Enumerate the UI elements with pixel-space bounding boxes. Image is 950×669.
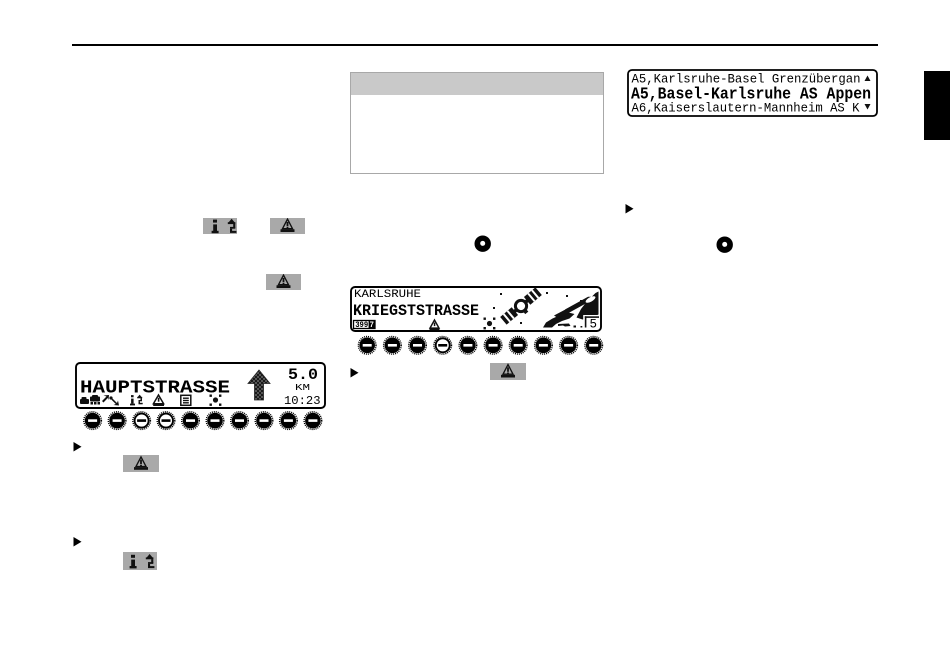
svg-text:10:23: 10:23 [284,394,321,408]
svg-text:5: 5 [590,317,598,331]
svg-text:5.0: 5.0 [288,366,318,384]
svg-text:KM: KM [295,383,310,393]
svg-text:7: 7 [370,321,375,330]
svg-text:KRIEGSTSTRASSE: KRIEGSTSTRASSE [353,302,479,320]
svg-text:KARLSRUHE: KARLSRUHE [354,289,421,301]
svg-text:A5,Karlsruhe-Basel Grenzüberga: A5,Karlsruhe-Basel Grenzübergan [632,73,861,87]
svg-text:HAUPTSTRASSE: HAUPTSTRASSE [80,379,230,399]
svg-text:A6,Kaiserslautern-Mannheim AS: A6,Kaiserslautern-Mannheim AS K [632,102,860,116]
svg-text:399: 399 [355,321,368,330]
